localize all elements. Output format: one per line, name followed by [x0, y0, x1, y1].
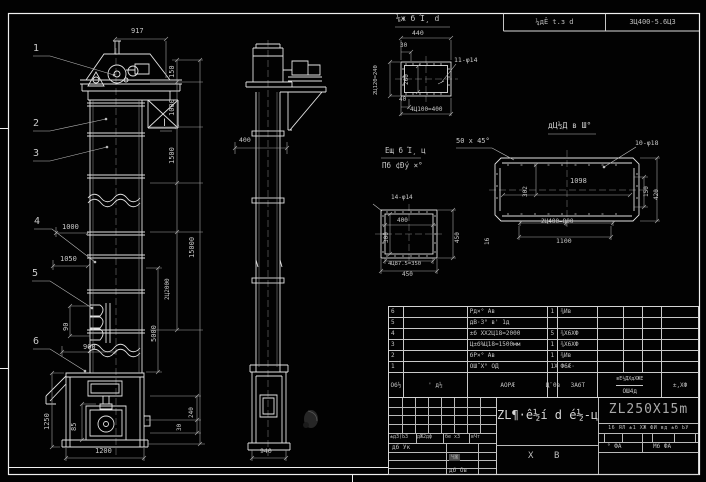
- tb-right-cell-b: Мб ФА: [653, 444, 671, 450]
- detail-views: [381, 62, 639, 258]
- bom-cell: 1Х: [548, 362, 558, 372]
- section-mark: Ⅰ: [163, 119, 166, 129]
- sheet-header-cell-1: ¼дÊ t.з d: [536, 19, 574, 26]
- dim-40: 40: [399, 97, 406, 103]
- dim-150: 150: [169, 65, 176, 78]
- dim-1000-left: 1000: [62, 224, 79, 231]
- dim-2x2000: 2Ц2000: [165, 278, 171, 300]
- bom-header-cell: Об½: [389, 373, 404, 398]
- dim-260: 260: [404, 74, 410, 85]
- dim-400-side: 400: [239, 137, 251, 144]
- dim-940: 940: [260, 448, 272, 455]
- bom-cell: ОШ˝Х° ОД: [468, 362, 549, 372]
- bom-cell: ±б ХХ2Ц18=2000: [468, 329, 549, 339]
- bom-cell: [662, 318, 698, 328]
- bom-cell: 1: [389, 362, 404, 372]
- bom-cell: 1: [548, 351, 558, 361]
- bom-cell: 5: [389, 318, 404, 328]
- bom-cell: [598, 362, 624, 372]
- bom-row: 1ОШ˝Х° ОД1ХФ6Æ·: [389, 362, 698, 373]
- dim-30-flange: 30: [400, 43, 407, 49]
- dim-30: 30: [177, 424, 183, 431]
- dim-150-plate: 150: [644, 186, 650, 197]
- bom-cell: [662, 351, 698, 361]
- cad-drawing-sheet: 123456Ⅰ917150100015002Ц20005000150001000…: [0, 0, 706, 482]
- bom-cell: 6: [389, 307, 404, 317]
- dim-450-sq-bottom: 450: [402, 272, 413, 278]
- tb-left-bottom: дб Ов: [449, 468, 467, 474]
- bom-header-cell: АОРÆ: [468, 373, 549, 398]
- dim-5000: 5000: [151, 325, 158, 342]
- hole-callout-14x14: 14-φ14: [391, 195, 413, 201]
- bom-cell: дВ·З° в' 1д: [468, 318, 549, 328]
- bom-cell: [662, 307, 698, 317]
- bom-cell: бР×° Ав: [468, 351, 549, 361]
- bom-cell: [404, 351, 468, 361]
- bom-cell: [624, 329, 643, 339]
- item-balloon-5: 5: [32, 269, 38, 279]
- dim-900: 900: [83, 344, 96, 351]
- tb-left-row2: дб Ук: [392, 445, 410, 451]
- bom-cell: [404, 329, 468, 339]
- dim-240: 240: [189, 407, 195, 418]
- bom-cell: [598, 318, 624, 328]
- dim-1050: 1050: [60, 256, 77, 263]
- bom-cell: [662, 362, 698, 372]
- bom-cell: ¾Ив: [558, 307, 598, 317]
- bom-remark-header: ±,ХФ: [662, 373, 698, 398]
- dim-1250: 1250: [44, 413, 51, 430]
- bom-cell: ¾Х6ХФ: [558, 329, 598, 339]
- bom-cell: ¾Х6ХФ: [558, 340, 598, 350]
- hole-callout-10x18: 10-φ18: [635, 140, 658, 147]
- bom-cell: [624, 340, 643, 350]
- sheet-header-cell-2: 3Ц400-5.6ЦЗ: [629, 19, 675, 26]
- dim-450-sq-right: 450: [455, 232, 461, 243]
- bom-cell: [598, 307, 624, 317]
- hole-callout-11x14: 11-φ14: [454, 57, 477, 64]
- item-balloon-6: 6: [33, 337, 39, 347]
- dim-440: 440: [412, 30, 424, 37]
- bom-cell: [624, 362, 643, 372]
- detail-b-title: Ещ б Ί¸ ц: [385, 147, 426, 155]
- bom-header-cell: Ц¨0в: [548, 373, 558, 398]
- bom-header-cell: ЗАбТ: [558, 373, 598, 398]
- bom-row: 3Ц±б%Ц18=1500мм1¾Х6ХФ: [389, 340, 698, 351]
- front-view: [46, 41, 182, 447]
- tb-center-mark-1: Х: [528, 452, 533, 461]
- dim-400-sq: 400: [397, 218, 408, 224]
- title-block: ±дЗ(ЬЗ дЖ2дф бе хЗ вЧт дб Ук ЧЖ дб Ов ZL…: [388, 397, 699, 475]
- bom-cell: [643, 329, 662, 339]
- bom-cell: [643, 307, 662, 317]
- dim-1098: 1098: [570, 178, 587, 185]
- bom-cell: [548, 318, 558, 328]
- bom-cell: ¾Ив: [558, 351, 598, 361]
- bom-cell: [598, 351, 624, 361]
- drawing-name: ZL¶·ê½í d é½-ц: [497, 408, 597, 422]
- item-balloon-2: 2: [33, 119, 39, 129]
- tb-left-cell-1: ±дЗ(ЬЗ: [390, 435, 408, 440]
- bom-cell: 3: [389, 340, 404, 350]
- bom-cell: [643, 340, 662, 350]
- bom-cell: [598, 340, 624, 350]
- scan-smudge: [303, 410, 318, 428]
- dim-2x400: 2Ц400=800: [541, 219, 574, 225]
- dim-300-sq: 300: [384, 232, 390, 243]
- tb-info-row: 16 ЯЛ ±1 ХЖ ФИ вд ±б ЬУ: [608, 426, 689, 431]
- bom-row: 5дВ·З° в' 1д: [389, 318, 698, 329]
- dim-1200: 1200: [95, 448, 112, 455]
- dim-917: 917: [131, 28, 144, 35]
- bom-cell: 5: [548, 329, 558, 339]
- bom-cell: 1: [548, 340, 558, 350]
- model-designation: ZL250X15m: [599, 402, 698, 417]
- dim-90: 90: [63, 323, 70, 331]
- item-balloon-4: 4: [34, 217, 40, 227]
- tb-left-cell-2: дЖ2дф: [417, 435, 432, 440]
- bom-cell: [643, 362, 662, 372]
- bom-cell: [643, 318, 662, 328]
- dim-1000: 1000: [169, 99, 176, 116]
- bom-cell: [624, 318, 643, 328]
- bom-weight-header: вЕ½ДХдХЖЕОШ4д: [598, 373, 662, 398]
- bom-cell: [662, 340, 698, 350]
- bom-row: 2бР×° Ав1¾Ив: [389, 351, 698, 362]
- dim-2x120: 2Ц120=240: [374, 65, 380, 95]
- bom-cell: 2: [389, 351, 404, 361]
- chamfer-note: 50 x 45°: [456, 138, 490, 145]
- dim-4x100: 4Ц100=400: [410, 107, 443, 113]
- bom-cell: [598, 329, 624, 339]
- bom-cell: [404, 318, 468, 328]
- bom-row: 4±б ХХ2Ц18=20005¾Х6ХФ: [389, 329, 698, 340]
- detail-c-title: дЦ½Д в Ш°: [548, 122, 591, 130]
- dim-1500: 1500: [169, 147, 176, 164]
- dim-16: 16: [485, 238, 491, 245]
- bom-table: 6Рд×° Ав1¾Ив5дВ·З° в' 1д4±б ХХ2Ц18=20005…: [388, 306, 699, 398]
- tb-right-cell-a: ° ФА: [607, 444, 621, 450]
- bom-header-row: Об½' д½АОРÆЦ¨0вЗАбТвЕ½ДХдХЖЕОШ4д±,ХФ: [389, 373, 698, 398]
- bom-cell: 1: [548, 307, 558, 317]
- bom-cell: 4: [389, 329, 404, 339]
- title-block-left-grid: ±дЗ(ЬЗ дЖ2дф бе хЗ вЧт дб Ук ЧЖ дб Ов: [389, 398, 497, 474]
- side-view: [246, 44, 326, 450]
- item-balloon-3: 3: [33, 149, 39, 159]
- dim-1100: 1100: [556, 238, 572, 245]
- detail-a-title: ⅛ж б Ί¸ d: [396, 15, 439, 23]
- bom-cell: Ц±б%Ц18=1500мм: [468, 340, 549, 350]
- bom-cell: [662, 329, 698, 339]
- dim-4x87: 4Ц87.5=350: [388, 262, 421, 268]
- dim-302: 302: [523, 186, 529, 197]
- tb-left-cell-4: вЧт: [471, 435, 480, 440]
- bom-cell: [404, 362, 468, 372]
- dim-420: 420: [654, 189, 660, 200]
- bom-cell: [558, 318, 598, 328]
- item-balloon-1: 1: [33, 44, 39, 54]
- tb-center-mark-2: В: [554, 452, 559, 461]
- tb-left-cell-3: бе хЗ: [445, 435, 460, 440]
- bom-cell: Рд×° Ав: [468, 307, 549, 317]
- bom-header-cell: ' д½: [404, 373, 468, 398]
- dim-85: 85: [71, 423, 78, 431]
- bom-cell: [404, 307, 468, 317]
- bom-row: 6Рд×° Ав1¾Ив: [389, 307, 698, 318]
- dim-15000: 15000: [189, 237, 196, 258]
- bom-cell: Ф6Æ·: [558, 362, 598, 372]
- tb-stamp: ЧЖ: [449, 454, 460, 461]
- bom-cell: [624, 307, 643, 317]
- bom-cell: [624, 351, 643, 361]
- detail-b-subtitle: Πб ¢Đý ×°: [382, 162, 423, 170]
- bom-cell: [643, 351, 662, 361]
- bom-cell: [404, 340, 468, 350]
